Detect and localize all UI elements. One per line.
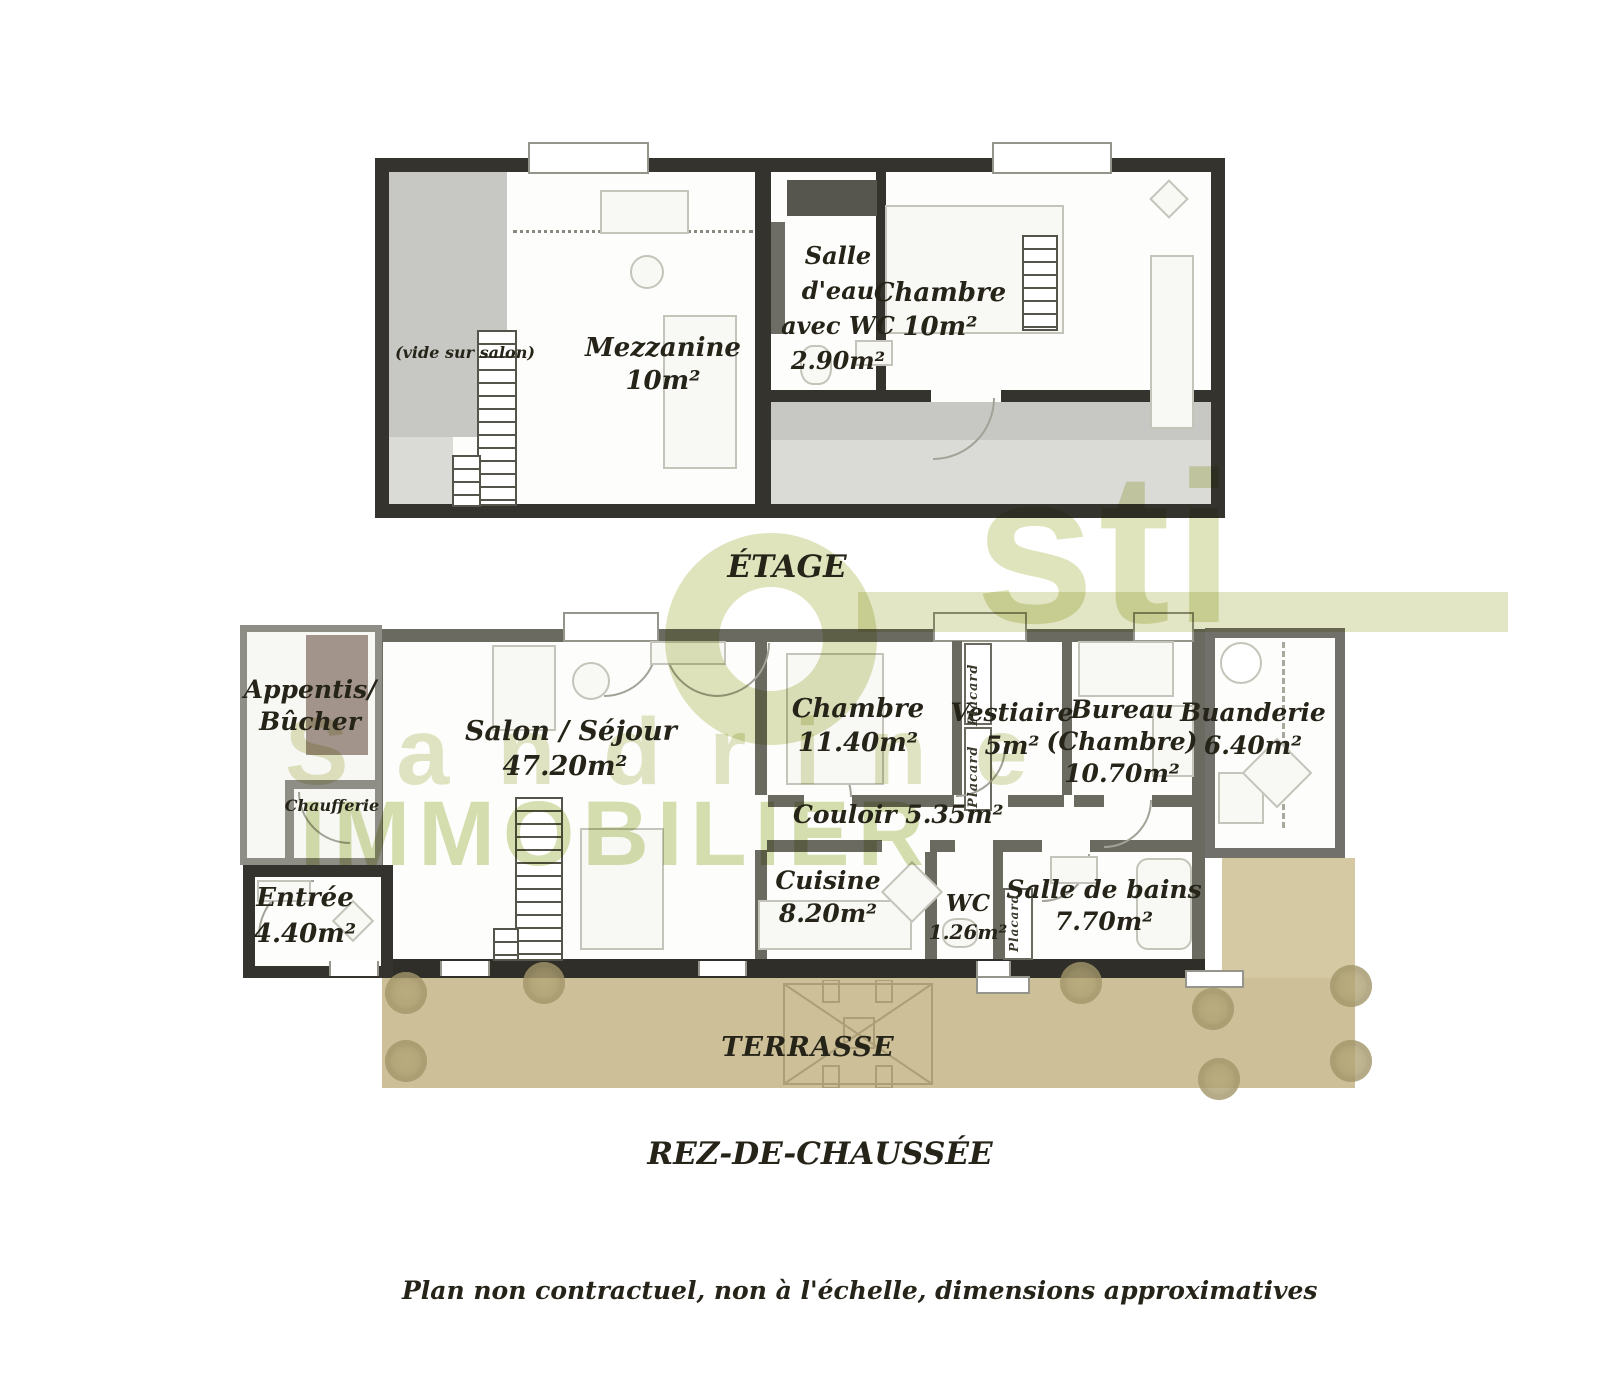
window-icon: [992, 142, 1112, 174]
room-label-chambre-rdc: Chambre 11.40m²: [758, 692, 958, 760]
wall: [1008, 795, 1064, 807]
window-icon: [976, 961, 1011, 976]
room-label-vide-sur-salon: (vide sur salon): [365, 343, 565, 362]
room-label-appentis: Appentis/ Bûcher: [210, 674, 410, 738]
plant-icon: [1330, 1040, 1372, 1082]
window-icon: [528, 142, 649, 174]
room-label-salle-bains: Salle de bains 7.70m²: [1004, 874, 1204, 938]
closet-label: Placard: [1007, 892, 1021, 952]
wall: [1152, 795, 1192, 807]
terrace-label-text: TERRASSE: [708, 1032, 908, 1063]
window-icon: [1185, 970, 1244, 988]
room-label-line: Salle: [768, 238, 908, 273]
shower-icon: [787, 180, 877, 216]
room-area: 10m²: [840, 310, 1040, 344]
staircase-icon: [493, 928, 519, 961]
armchair-icon: [572, 662, 610, 700]
room-label-line: Cuisine: [728, 864, 928, 897]
terrace-side-area: [1222, 858, 1355, 978]
wall: [767, 840, 882, 852]
terrace-label: TERRASSE: [708, 1032, 908, 1063]
room-label-couloir: Couloir 5.35m²: [793, 800, 993, 829]
room-label-line: Mezzanine: [563, 332, 763, 365]
room-label-chaufferie: Chaufferie: [282, 796, 382, 815]
room-label-line: Bûcher: [210, 706, 410, 738]
window-icon: [976, 976, 1030, 994]
window-icon: [1133, 612, 1194, 642]
floor-title-text: ÉTAGE: [637, 549, 937, 585]
plant-icon: [1198, 1058, 1240, 1100]
room-label-chambre-etage: Chambre 10m²: [840, 276, 1040, 344]
room-area: 2.90m²: [768, 343, 908, 378]
plant-icon: [523, 962, 565, 1004]
room-label-line: Chaufferie: [282, 796, 382, 815]
room-area: 10.70m²: [1032, 758, 1212, 790]
room-area: 11.40m²: [758, 726, 958, 760]
room-area: 10m²: [563, 365, 763, 398]
tv-cabinet-icon: [650, 641, 726, 665]
sofa-icon: [1150, 255, 1194, 429]
room-label-buanderie: Buanderie 6.40m²: [1163, 696, 1343, 762]
room-label-line: (vide sur salon): [365, 343, 565, 362]
roof-band: [771, 440, 1211, 504]
window-icon: [329, 961, 379, 976]
room-area: 6.40m²: [1163, 729, 1343, 762]
room-label-line: Buanderie: [1163, 696, 1343, 729]
dining-table-icon: [580, 828, 664, 950]
disclaimer-line: Plan non contractuel, non à l'échelle, d…: [402, 1276, 1302, 1305]
room-label-entree: Entrée 4.40m²: [205, 880, 405, 952]
room-label-line: Appentis/: [210, 674, 410, 706]
window-icon: [933, 612, 1027, 642]
wall: [771, 390, 931, 402]
room-label-line: Chambre: [840, 276, 1040, 310]
closet-label: Placard: [966, 648, 981, 726]
wall: [285, 780, 294, 865]
chair-icon: [630, 255, 664, 289]
plant-pot-icon: [1220, 642, 1262, 684]
closet-label: Placard: [966, 730, 981, 808]
room-label-line: Salon / Séjour: [465, 714, 665, 749]
room-area: 4.40m²: [205, 916, 405, 952]
roof-band: [389, 437, 453, 504]
plant-icon: [385, 972, 427, 1014]
floor-title-rdc: REZ-DE-CHAUSSÉE: [620, 1136, 1020, 1172]
room-label-line: Entrée: [205, 880, 405, 916]
desk-icon: [600, 190, 689, 234]
wall: [1074, 795, 1104, 807]
floor-title-etage: ÉTAGE: [637, 549, 937, 585]
room-area: 47.20m²: [465, 749, 665, 784]
wall: [930, 840, 955, 852]
disclaimer-text: Plan non contractuel, non à l'échelle, d…: [402, 1276, 1302, 1305]
room-label-salon: Salon / Séjour 47.20m²: [465, 714, 665, 784]
window-icon: [440, 961, 490, 976]
room-label-mezzanine: Mezzanine 10m²: [563, 332, 763, 398]
room-area: 7.70m²: [1004, 906, 1204, 938]
floor-title-text: REZ-DE-CHAUSSÉE: [620, 1136, 1020, 1172]
room-label-line: Salle de bains: [1004, 874, 1204, 906]
room-label-cuisine: Cuisine 8.20m²: [728, 864, 928, 930]
wall: [993, 840, 1042, 852]
sofa-icon: [1078, 641, 1174, 697]
staircase-icon: [515, 797, 563, 961]
plant-icon: [1192, 988, 1234, 1030]
plant-icon: [385, 1040, 427, 1082]
room-area: 8.20m²: [728, 897, 928, 930]
floorplan-page: sti Sandrine IMMOBILIER (vide sur salon)…: [0, 0, 1604, 1398]
plant-icon: [1060, 962, 1102, 1004]
staircase-icon: [452, 455, 481, 507]
wall: [285, 780, 382, 789]
plant-icon: [1330, 965, 1372, 1007]
window-icon: [698, 961, 747, 976]
room-label-line: Couloir 5.35m²: [793, 800, 993, 829]
window-icon: [563, 612, 659, 642]
room-label-line: Chambre: [758, 692, 958, 726]
